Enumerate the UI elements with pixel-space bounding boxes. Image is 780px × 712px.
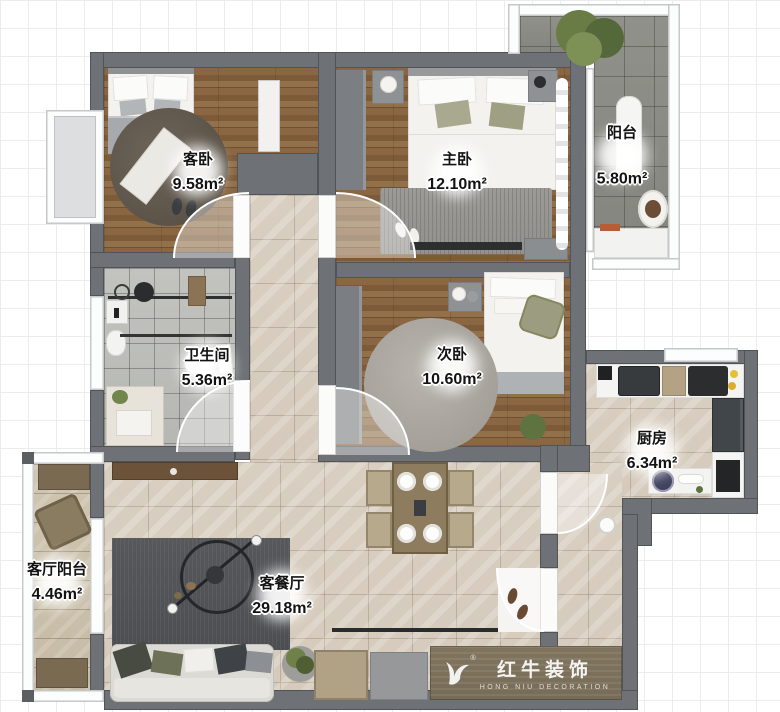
dining-chair (448, 512, 474, 548)
door-second-bedroom (318, 385, 336, 455)
room-name: 次卧 (437, 343, 467, 364)
pet-bed-cushion (645, 200, 661, 218)
bull-logo-icon: ® (442, 658, 472, 688)
wardrobe-master (336, 70, 366, 190)
room-name: 客卧 (183, 148, 213, 169)
room-area: 5.36m² (182, 372, 233, 390)
fan-hub (206, 566, 224, 584)
bay-window-glass (54, 116, 96, 218)
decor-item (600, 224, 620, 231)
wall-vestibule-top (556, 445, 590, 472)
room-label-balcony: 阳台 5.80m² (597, 122, 648, 189)
watermark-text: 红牛装饰 HONG NIU DECORATION (480, 655, 611, 691)
room-name: 客厅阳台 (27, 558, 87, 579)
kitchen-counter-right (712, 452, 744, 498)
table-lamp (380, 76, 397, 93)
room-name: 卫生间 (184, 344, 229, 365)
living-balcony-opening (90, 518, 104, 634)
bay-window (46, 110, 104, 224)
bathroom-shelf (188, 276, 206, 306)
gray-cabinet (370, 652, 428, 700)
cutting-board (662, 366, 686, 396)
brand-watermark: ® 红牛装饰 HONG NIU DECORATION (430, 646, 622, 700)
balcony-frame-right (668, 4, 680, 270)
kitchen-sink (618, 366, 660, 396)
utensil (728, 382, 736, 390)
door-master-bedroom (318, 195, 336, 258)
floor-corridor (250, 195, 318, 462)
dining-table (392, 462, 448, 554)
pet-bed (638, 190, 668, 228)
vanity-basin (116, 410, 152, 436)
kitchen-window (664, 348, 738, 362)
sofa-pillow (151, 650, 184, 676)
plant-pot-living (282, 646, 318, 682)
cooktop (688, 366, 728, 396)
tv-living (332, 628, 498, 632)
pillow (490, 277, 557, 299)
nightstand-second (448, 282, 482, 312)
bathroom-vanity (106, 386, 164, 446)
tray (678, 474, 704, 484)
oven (716, 460, 740, 492)
table-lamp (452, 287, 466, 301)
sofa-seat (114, 678, 270, 698)
wall-kitchen-bottom (640, 498, 758, 514)
leaf-decor (174, 592, 182, 599)
sofa-pillow (113, 641, 154, 678)
master-balcony-window (586, 68, 594, 252)
brand-name: 红牛装饰 (497, 655, 593, 682)
leaf-decor (186, 582, 196, 590)
dining-chair (366, 470, 392, 506)
sofa-pillow (245, 651, 273, 674)
room-area: 4.46m² (32, 586, 83, 604)
rain-shower-head (134, 282, 154, 302)
wall-kitchen-right (744, 350, 758, 514)
side-cabinet (314, 650, 368, 700)
plate (423, 472, 442, 491)
wardrobe-guest (258, 80, 280, 152)
herb (696, 486, 703, 493)
room-label-master-bedroom: 主卧 12.10m² (427, 148, 487, 194)
console-cabinet (112, 462, 238, 480)
frame-corner-post-top (22, 452, 34, 464)
bathroom-window (90, 296, 104, 390)
wardrobe-block-guest (237, 153, 318, 195)
sofa (110, 644, 274, 702)
room-label-living-dining: 客餐厅 29.18m² (252, 572, 312, 618)
floor-plan-canvas: 客卧 9.58m² 主卧 12.10m² 阳台 5.80m² 卫生间 5.36m… (0, 0, 780, 712)
decor-item (467, 291, 478, 302)
frame-corner-post-bottom (22, 690, 34, 702)
plate (397, 524, 416, 543)
balcony-frame-top (508, 4, 680, 16)
shower-valve (114, 284, 130, 300)
nightstand-left (372, 70, 404, 104)
pillow (152, 75, 188, 101)
nightstand-right (528, 70, 558, 102)
room-label-living-balcony: 客厅阳台 4.46m² (27, 558, 87, 604)
fan-bulb (168, 604, 177, 613)
balcony-cabinet (594, 228, 668, 258)
room-area: 9.58m² (173, 176, 224, 194)
utensil (730, 370, 738, 378)
dining-chair (448, 470, 474, 506)
wall-living-right (622, 514, 638, 692)
room-name: 阳台 (607, 122, 637, 143)
table-centerpiece (414, 500, 426, 516)
pillow-olive (489, 102, 526, 130)
door-kitchen (540, 472, 558, 534)
wall-right-bedrooms (570, 52, 586, 462)
room-label-bathroom: 卫生间 5.36m² (182, 344, 233, 390)
room-name: 客餐厅 (259, 572, 304, 593)
tv-master (410, 242, 522, 250)
bed-headboard (108, 68, 194, 74)
kitchen-counter-top (596, 364, 744, 398)
plant-balcony-leaf (566, 32, 602, 66)
room-area: 12.10m² (427, 176, 487, 194)
bathroom-sink (106, 300, 128, 324)
stool-round (598, 516, 616, 534)
room-area: 29.18m² (252, 600, 312, 618)
refrigerator (712, 398, 744, 452)
pillow (112, 75, 149, 101)
room-label-second-bedroom: 次卧 10.60m² (422, 343, 482, 389)
room-area: 6.34m² (627, 455, 678, 473)
registered-mark: ® (471, 655, 476, 662)
dining-chair (366, 512, 392, 548)
balcony-bench-top (38, 464, 90, 490)
wall-entry-a (540, 445, 558, 472)
curtain (556, 78, 568, 250)
plate (397, 472, 416, 491)
wall-left-a (90, 52, 104, 112)
plant-small (112, 390, 128, 404)
faucet (114, 308, 119, 318)
balcony-frame-bottom (592, 258, 680, 270)
slipper (171, 197, 183, 215)
balcony-frame-left (508, 4, 520, 54)
duvet-fold (408, 134, 556, 135)
plant-leaves (296, 656, 314, 674)
decor-item (534, 76, 546, 88)
room-area: 10.60m² (422, 371, 482, 389)
balcony-bench-bottom (36, 658, 88, 688)
room-label-guest-bedroom: 客卧 9.58m² (173, 148, 224, 194)
fan-bulb (252, 536, 261, 545)
plate (423, 524, 442, 543)
room-label-kitchen: 厨房 6.34m² (627, 427, 678, 473)
room-area: 5.80m² (597, 171, 648, 189)
room-name: 厨房 (637, 427, 667, 448)
shower-glass-divider (120, 334, 232, 337)
wall-entry-b (540, 534, 558, 568)
cabinet-knob (170, 468, 177, 475)
wall-top (90, 52, 586, 68)
living-balcony-frame-bottom (22, 690, 104, 702)
brand-subtitle: HONG NIU DECORATION (480, 684, 611, 691)
living-balcony-frame-top (22, 452, 104, 464)
plant-second (520, 414, 546, 440)
sofa-pillow (183, 647, 215, 673)
kitchen-appliance-small (598, 366, 612, 380)
room-name: 主卧 (442, 148, 472, 169)
pillow-olive (434, 100, 471, 128)
